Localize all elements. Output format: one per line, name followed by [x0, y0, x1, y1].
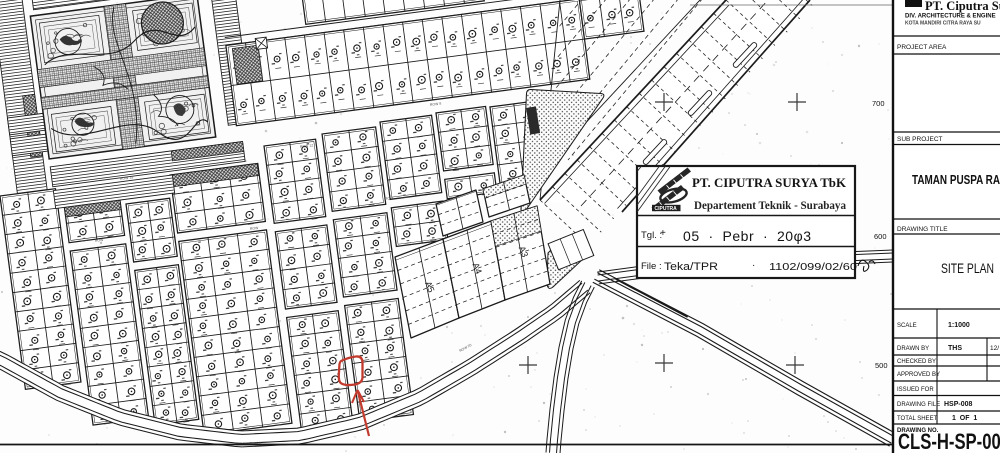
svg-text:Tgl. :: Tgl. : [641, 230, 662, 241]
svg-text:PROJECT AREA: PROJECT AREA [897, 44, 947, 51]
svg-text:PT. Ciputra Su: PT. Ciputra Su [925, 0, 1000, 13]
svg-text:05 · Pebr · 20φ3: 05 · Pebr · 20φ3 [683, 228, 811, 244]
svg-text:HSP-008: HSP-008 [944, 401, 973, 408]
svg-text:·: · [752, 260, 755, 271]
svg-text:CLS-H-SP-008: CLS-H-SP-008 [898, 429, 1000, 453]
svg-text:+: + [660, 228, 666, 239]
svg-text:1 OF 1: 1 OF 1 [952, 415, 977, 422]
svg-text:12/: 12/ [990, 345, 999, 352]
svg-text:Departement Teknik - Surabaya: Departement Teknik - Surabaya [694, 200, 846, 212]
svg-text:ISSUED FOR: ISSUED FOR [897, 387, 934, 393]
svg-text:TAMAN PUSPA RA: TAMAN PUSPA RA [912, 172, 1000, 187]
svg-text:CHECKED BY: CHECKED BY [897, 359, 936, 365]
svg-text:CIPUTRA: CIPUTRA [655, 206, 678, 212]
svg-text:File :: File : [641, 261, 662, 272]
svg-text:1102/099/02/60: 1102/099/02/60 [769, 261, 857, 273]
svg-text:DRAWING FILE: DRAWING FILE [897, 402, 940, 408]
svg-text:SUB PROJECT: SUB PROJECT [897, 136, 943, 143]
svg-text:500: 500 [875, 361, 888, 370]
svg-text:600: 600 [874, 232, 887, 241]
svg-text:TOTAL SHEET: TOTAL SHEET [897, 416, 938, 422]
svg-text:THS: THS [948, 345, 962, 352]
svg-text:SITE PLAN: SITE PLAN [941, 261, 994, 276]
svg-text:DRAWN BY: DRAWN BY [897, 346, 929, 352]
svg-text:KOTA MANDIRI CITRA RAYA SU: KOTA MANDIRI CITRA RAYA SU [905, 21, 981, 27]
svg-text:1:1000: 1:1000 [948, 322, 970, 329]
svg-text:700: 700 [872, 99, 885, 108]
svg-text:APPROVED BY: APPROVED BY [897, 372, 940, 378]
svg-text:SCALE: SCALE [897, 323, 917, 329]
svg-text:PT. CIPUTRA SURYA TbK: PT. CIPUTRA SURYA TbK [692, 176, 847, 190]
svg-text:DRAWING TITLE: DRAWING TITLE [897, 226, 948, 233]
svg-text:Teka/TPR: Teka/TPR [664, 261, 718, 273]
svg-text:DIV. ARCHITECTURE & ENGINE: DIV. ARCHITECTURE & ENGINE [905, 14, 996, 20]
